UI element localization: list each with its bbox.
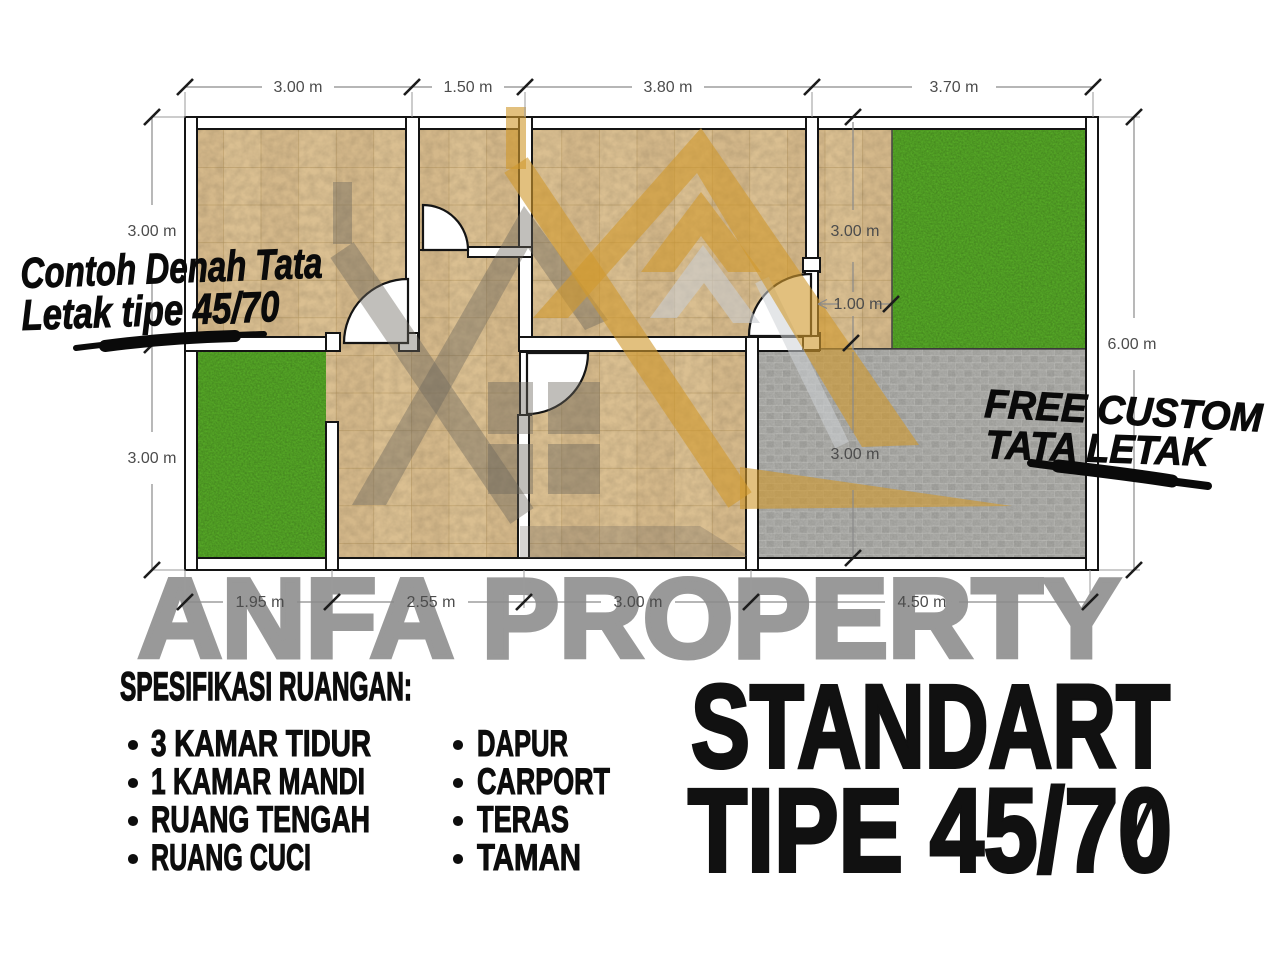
svg-text:3.00 m: 3.00 m bbox=[614, 594, 663, 611]
svg-text:RUANG TENGAH: RUANG TENGAH bbox=[151, 799, 370, 840]
svg-text:4.50 m: 4.50 m bbox=[898, 594, 947, 611]
svg-text:1.00 m: 1.00 m bbox=[834, 296, 883, 313]
svg-text:TERAS: TERAS bbox=[477, 799, 569, 840]
svg-text:Letak tipe 45/70: Letak tipe 45/70 bbox=[21, 283, 281, 340]
svg-text:2.55 m: 2.55 m bbox=[407, 594, 456, 611]
svg-text:3.00 m: 3.00 m bbox=[128, 223, 177, 240]
svg-text:3 KAMAR TIDUR: 3 KAMAR TIDUR bbox=[151, 723, 371, 764]
svg-text:SPESIFIKASI RUANGAN:: SPESIFIKASI RUANGAN: bbox=[120, 665, 412, 709]
svg-text:3.00 m: 3.00 m bbox=[831, 446, 880, 463]
svg-text:RUANG CUCI: RUANG CUCI bbox=[151, 837, 311, 878]
svg-text:3.70 m: 3.70 m bbox=[930, 79, 979, 96]
svg-text:3.00 m: 3.00 m bbox=[831, 223, 880, 240]
svg-text:3.80 m: 3.80 m bbox=[644, 79, 693, 96]
svg-text:TAMAN: TAMAN bbox=[477, 837, 581, 878]
svg-text:1.95 m: 1.95 m bbox=[236, 594, 285, 611]
svg-text:DAPUR: DAPUR bbox=[477, 723, 568, 764]
svg-text:1 KAMAR MANDI: 1 KAMAR MANDI bbox=[151, 761, 365, 802]
svg-text:6.00 m: 6.00 m bbox=[1108, 336, 1157, 353]
svg-text:TIPE 45/70: TIPE 45/70 bbox=[688, 765, 1172, 897]
svg-text:3.00 m: 3.00 m bbox=[128, 450, 177, 467]
svg-text:3.00 m: 3.00 m bbox=[274, 79, 323, 96]
svg-text:CARPORT: CARPORT bbox=[477, 761, 610, 802]
svg-text:1.50 m: 1.50 m bbox=[444, 79, 493, 96]
